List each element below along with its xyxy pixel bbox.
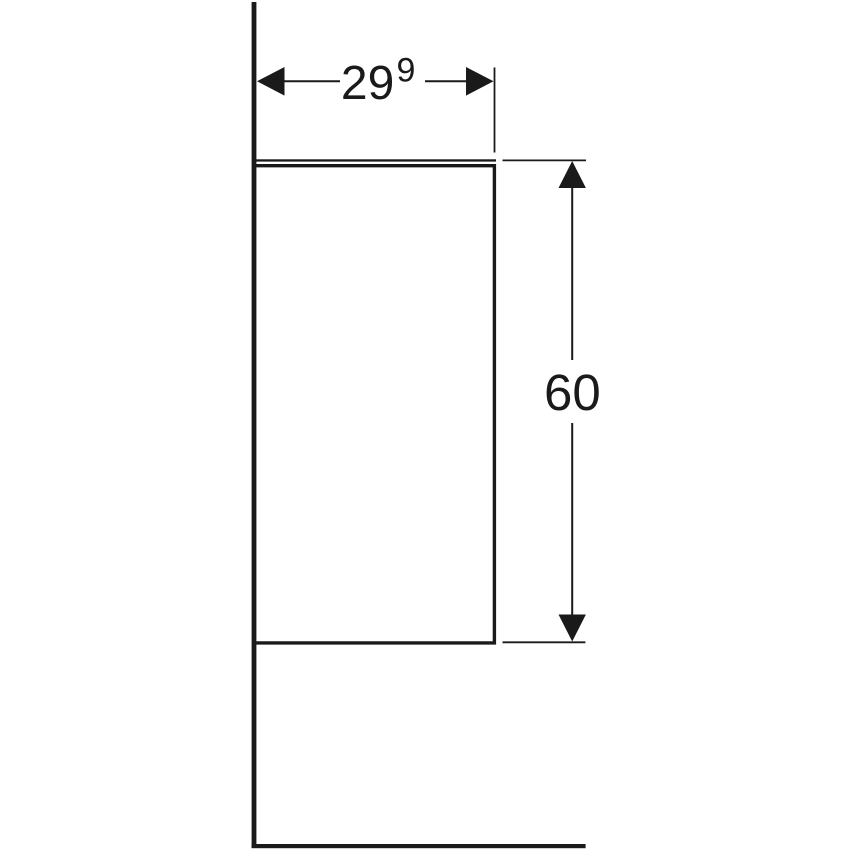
svg-text:29: 29 xyxy=(341,57,394,110)
svg-text:60: 60 xyxy=(544,364,601,421)
svg-text:9: 9 xyxy=(397,52,416,90)
